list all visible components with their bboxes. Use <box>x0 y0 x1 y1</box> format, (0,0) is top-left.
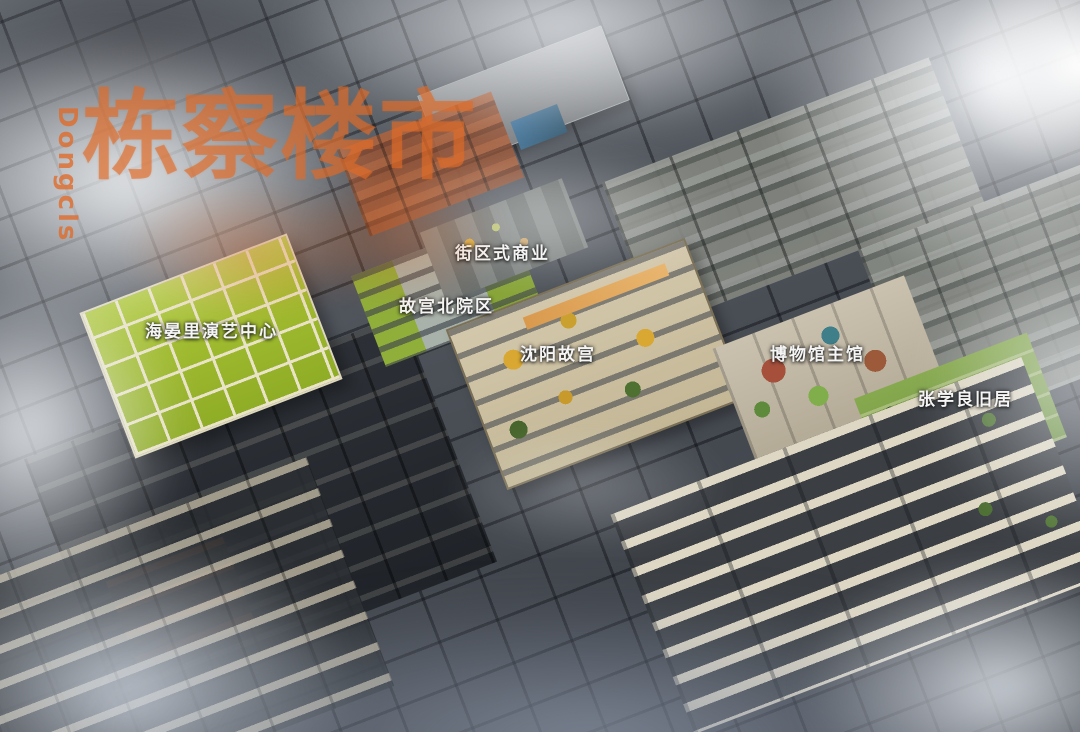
map-label-museum-main-hall: 博物馆主馆 <box>770 340 865 365</box>
map-label-shenyang-palace: 沈阳故宫 <box>520 340 596 365</box>
aerial-masterplan-photo: 街区式商业 故宫北院区 沈阳故宫 博物馆主馆 张学良旧居 海晏里演艺中心 Don… <box>0 0 1080 732</box>
map-label-haiyanli-center: 海晏里演艺中心 <box>145 317 278 342</box>
watermark-latin-vertical: Dongcls <box>52 106 82 243</box>
watermark-brand-text: 栋察楼市 <box>82 88 478 185</box>
map-label-zhangxueliang-residence: 张学良旧居 <box>918 385 1013 410</box>
